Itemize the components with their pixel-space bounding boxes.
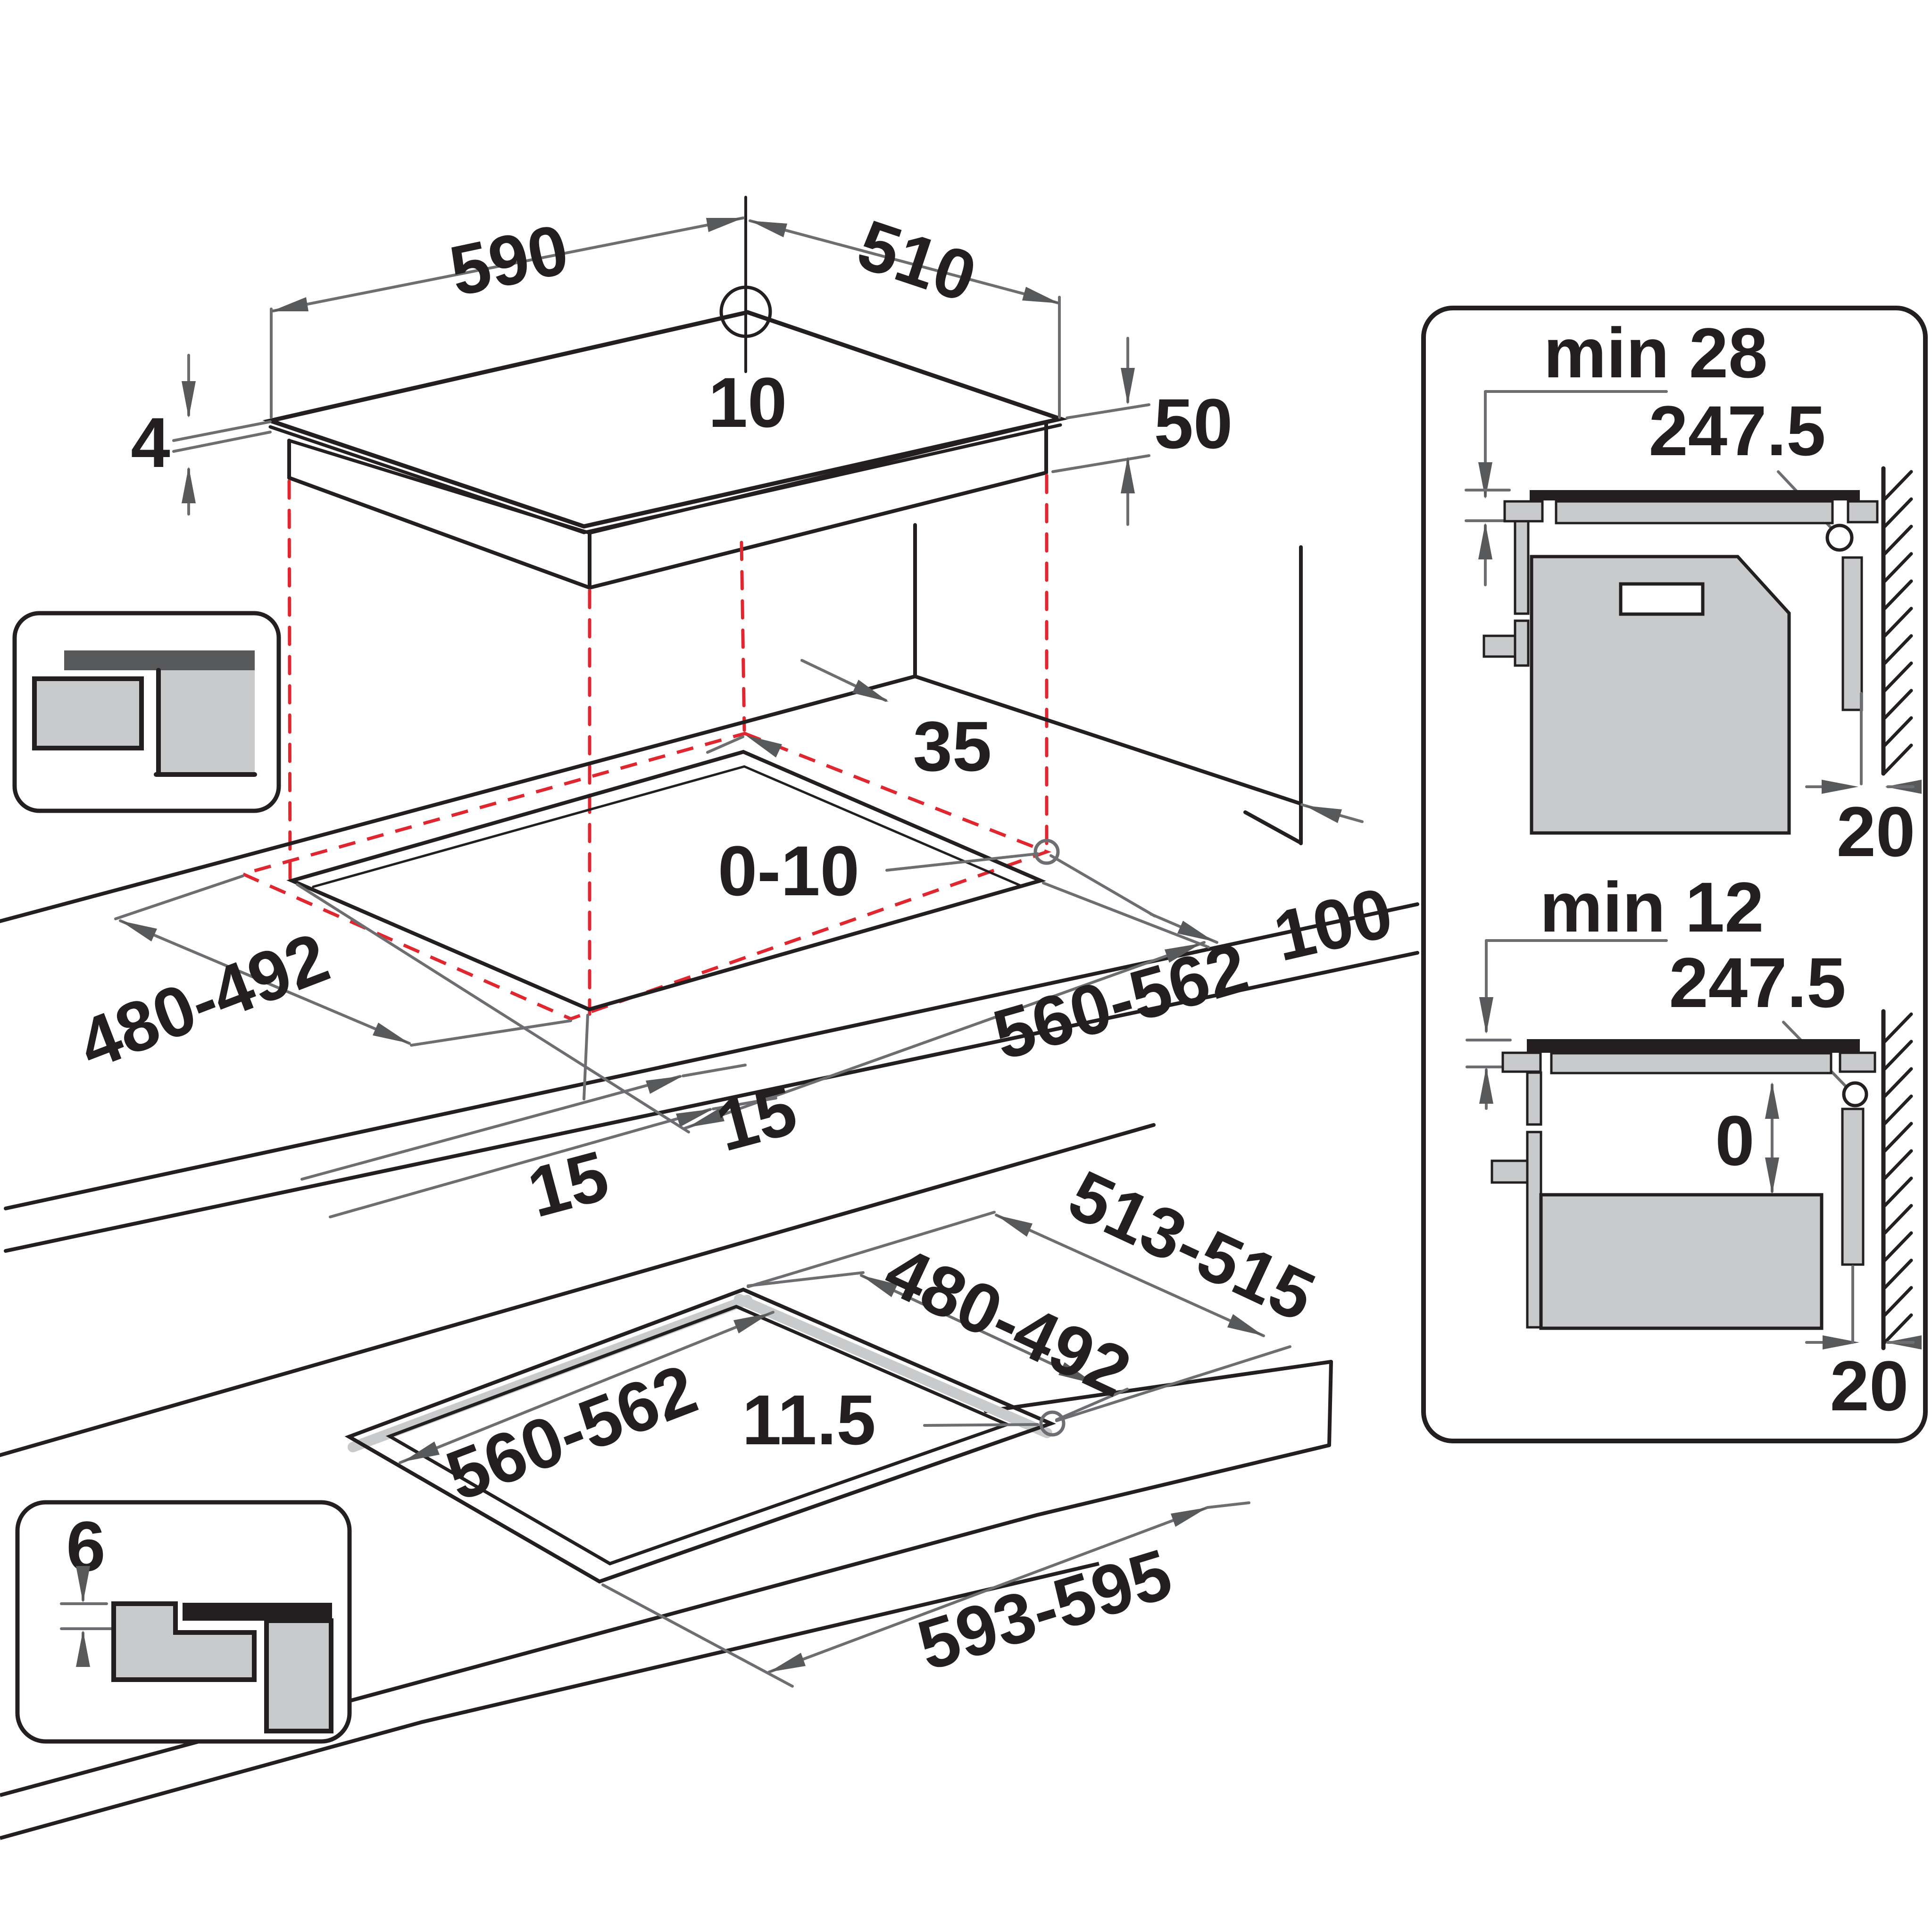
svg-text:247.5: 247.5 bbox=[1669, 943, 1846, 1022]
svg-text:4: 4 bbox=[131, 403, 170, 482]
svg-text:min 28: min 28 bbox=[1543, 313, 1767, 392]
svg-text:247.5: 247.5 bbox=[1649, 391, 1825, 470]
svg-text:min 12: min 12 bbox=[1540, 867, 1764, 947]
svg-text:11.5: 11.5 bbox=[742, 1380, 876, 1459]
svg-text:0-10: 0-10 bbox=[718, 831, 859, 910]
svg-text:35: 35 bbox=[913, 707, 992, 786]
svg-text:50: 50 bbox=[1154, 384, 1233, 463]
svg-text:20: 20 bbox=[1837, 792, 1915, 871]
svg-text:20: 20 bbox=[1830, 1346, 1909, 1425]
svg-text:0: 0 bbox=[1715, 1101, 1754, 1180]
svg-text:10: 10 bbox=[708, 363, 787, 442]
